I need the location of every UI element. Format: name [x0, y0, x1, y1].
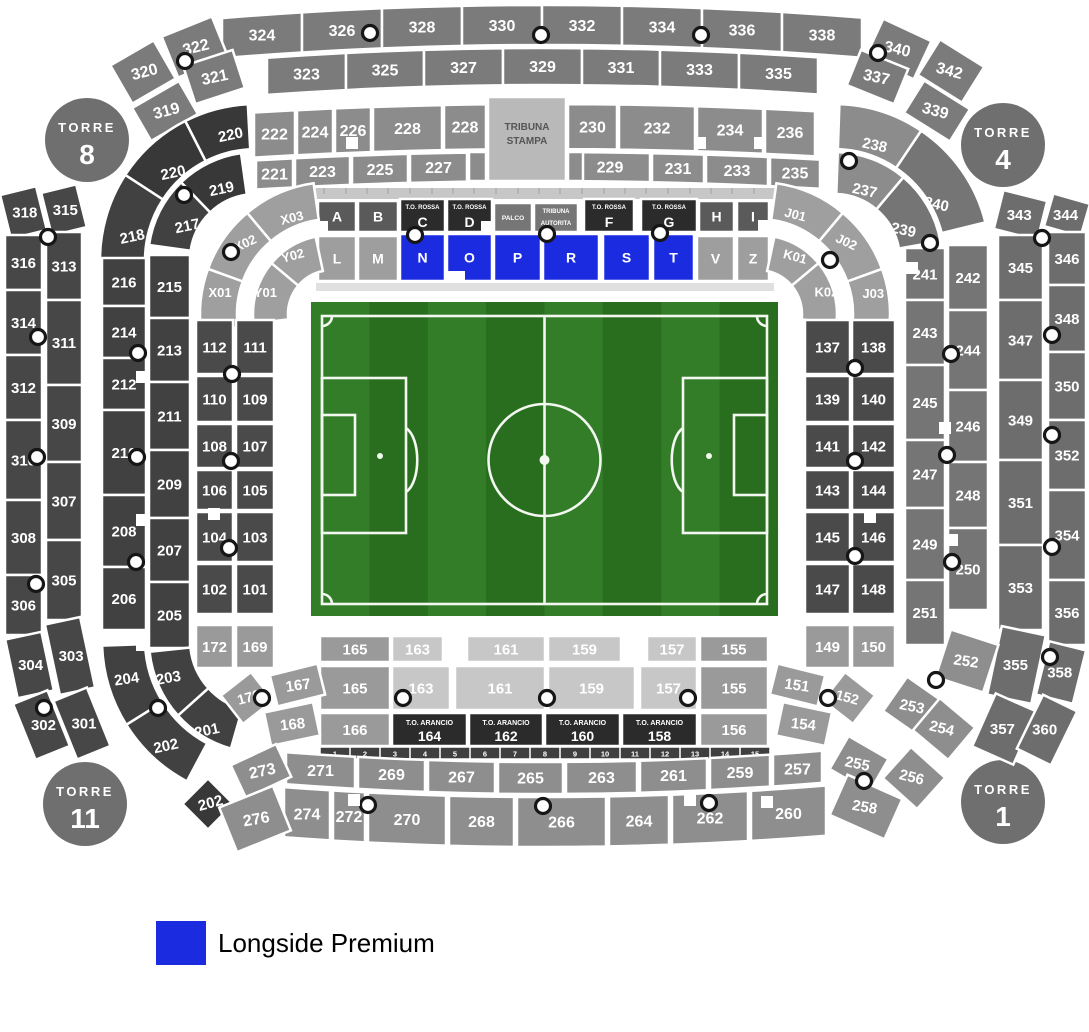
svg-text:TORRE: TORRE [56, 784, 114, 799]
svg-text:324: 324 [249, 28, 276, 45]
svg-text:157: 157 [659, 641, 684, 658]
svg-text:155: 155 [721, 680, 746, 697]
svg-text:T.O. ARANCIO: T.O. ARANCIO [636, 720, 684, 727]
svg-text:331: 331 [608, 60, 635, 77]
svg-text:110: 110 [202, 391, 226, 408]
svg-text:216: 216 [111, 274, 136, 291]
svg-text:272: 272 [336, 809, 363, 826]
svg-text:328: 328 [409, 20, 436, 37]
svg-text:160: 160 [571, 728, 595, 744]
svg-text:347: 347 [1008, 332, 1033, 349]
svg-text:3: 3 [393, 750, 397, 759]
svg-text:5: 5 [453, 750, 457, 759]
svg-text:358: 358 [1047, 665, 1072, 682]
svg-text:H: H [711, 208, 721, 224]
svg-text:306: 306 [11, 597, 36, 614]
svg-text:163: 163 [405, 641, 430, 658]
svg-text:350: 350 [1054, 378, 1079, 395]
svg-text:204: 204 [113, 669, 141, 689]
svg-text:336: 336 [729, 22, 756, 39]
svg-text:7: 7 [513, 750, 517, 759]
svg-text:245: 245 [912, 395, 937, 412]
svg-text:208: 208 [111, 523, 136, 540]
svg-text:159: 159 [572, 641, 597, 658]
svg-text:T.O. ARANCIO: T.O. ARANCIO [559, 720, 607, 727]
svg-text:265: 265 [517, 771, 544, 788]
svg-text:105: 105 [242, 482, 267, 499]
svg-text:154: 154 [790, 715, 817, 735]
svg-text:352: 352 [1054, 447, 1079, 464]
svg-text:163: 163 [408, 680, 433, 697]
svg-text:269: 269 [378, 767, 405, 784]
svg-text:147: 147 [815, 581, 840, 598]
svg-text:D: D [464, 214, 474, 230]
svg-text:TRIBUNA: TRIBUNA [505, 122, 550, 133]
svg-text:165: 165 [342, 641, 367, 658]
svg-text:248: 248 [955, 487, 980, 504]
svg-text:Z: Z [749, 250, 758, 266]
svg-text:318: 318 [12, 205, 37, 222]
svg-text:351: 351 [1008, 495, 1033, 512]
svg-text:229: 229 [597, 160, 624, 177]
svg-text:228: 228 [394, 121, 421, 138]
svg-text:101: 101 [242, 581, 267, 598]
svg-text:335: 335 [765, 66, 792, 83]
svg-text:I: I [751, 208, 755, 224]
svg-text:111: 111 [243, 339, 266, 356]
svg-text:148: 148 [861, 581, 886, 598]
svg-text:230: 230 [579, 119, 606, 136]
svg-text:167: 167 [285, 675, 312, 695]
svg-text:172: 172 [202, 639, 227, 656]
svg-text:F: F [605, 214, 614, 230]
svg-text:261: 261 [660, 768, 687, 785]
svg-text:106: 106 [202, 482, 227, 499]
svg-text:329: 329 [529, 59, 556, 76]
svg-text:227: 227 [425, 160, 452, 177]
svg-text:O: O [464, 249, 475, 265]
svg-text:304: 304 [18, 657, 44, 674]
svg-text:327: 327 [450, 60, 477, 77]
svg-text:Y01: Y01 [254, 285, 277, 300]
svg-text:Longside Premium: Longside Premium [218, 928, 435, 958]
svg-text:301: 301 [71, 715, 96, 732]
svg-text:224: 224 [302, 124, 329, 141]
svg-text:4: 4 [995, 144, 1011, 175]
svg-text:349: 349 [1008, 412, 1033, 429]
svg-text:305: 305 [51, 572, 76, 589]
svg-text:TORRE: TORRE [974, 782, 1032, 797]
svg-text:266: 266 [548, 815, 575, 832]
svg-text:143: 143 [815, 482, 840, 499]
svg-text:168: 168 [279, 715, 306, 735]
svg-text:274: 274 [294, 806, 321, 823]
svg-text:169: 169 [242, 639, 267, 656]
svg-text:T.O. ARANCIO: T.O. ARANCIO [406, 720, 454, 727]
svg-text:205: 205 [157, 607, 182, 624]
svg-text:T: T [669, 249, 678, 265]
svg-text:247: 247 [912, 466, 937, 483]
svg-text:N: N [417, 249, 427, 265]
svg-text:TRIBUNA: TRIBUNA [543, 209, 571, 215]
svg-text:309: 309 [51, 416, 76, 433]
svg-text:325: 325 [372, 62, 399, 79]
svg-text:233: 233 [724, 163, 751, 180]
svg-text:145: 145 [815, 529, 840, 546]
svg-text:307: 307 [51, 493, 76, 510]
svg-text:X01: X01 [209, 285, 232, 300]
svg-text:242: 242 [955, 270, 980, 287]
svg-text:112: 112 [202, 339, 226, 356]
svg-text:355: 355 [1003, 657, 1028, 674]
svg-text:346: 346 [1054, 251, 1079, 268]
svg-text:158: 158 [648, 728, 672, 744]
svg-text:209: 209 [157, 476, 182, 493]
svg-text:257: 257 [784, 761, 811, 778]
svg-text:8: 8 [79, 139, 95, 170]
svg-text:12: 12 [661, 750, 669, 759]
svg-text:264: 264 [626, 813, 653, 830]
svg-text:103: 103 [242, 529, 267, 546]
svg-text:334: 334 [649, 19, 676, 36]
svg-text:140: 140 [861, 391, 886, 408]
svg-text:225: 225 [367, 162, 394, 179]
svg-text:313: 313 [51, 258, 76, 275]
svg-text:P: P [513, 249, 522, 265]
svg-text:338: 338 [809, 27, 836, 44]
svg-text:235: 235 [782, 165, 809, 182]
svg-text:139: 139 [815, 391, 840, 408]
svg-text:357: 357 [990, 721, 1015, 738]
svg-text:TORRE: TORRE [58, 120, 116, 135]
svg-text:151: 151 [783, 675, 810, 695]
svg-text:T.O. ROSSA: T.O. ROSSA [452, 205, 487, 211]
svg-text:259: 259 [727, 765, 754, 782]
svg-text:162: 162 [494, 728, 518, 744]
svg-text:234: 234 [717, 123, 744, 140]
svg-text:308: 308 [11, 530, 36, 547]
svg-text:150: 150 [861, 639, 886, 656]
svg-text:270: 270 [394, 812, 421, 829]
svg-text:260: 260 [775, 806, 802, 823]
svg-text:V: V [711, 250, 721, 266]
svg-text:215: 215 [157, 279, 182, 296]
svg-text:222: 222 [261, 126, 288, 143]
svg-text:315: 315 [53, 202, 78, 219]
svg-text:206: 206 [111, 591, 136, 608]
svg-text:252: 252 [952, 651, 979, 671]
svg-text:332: 332 [569, 18, 596, 35]
svg-text:267: 267 [448, 770, 475, 787]
svg-text:155: 155 [721, 641, 746, 658]
svg-text:STAMPA: STAMPA [507, 136, 548, 147]
svg-text:161: 161 [493, 641, 518, 658]
svg-text:156: 156 [721, 722, 746, 739]
svg-text:343: 343 [1007, 207, 1032, 224]
svg-text:B: B [373, 208, 383, 224]
svg-text:164: 164 [418, 728, 442, 744]
svg-text:348: 348 [1054, 311, 1079, 328]
svg-text:221: 221 [261, 167, 288, 184]
svg-text:K02: K02 [815, 284, 839, 299]
svg-text:10: 10 [601, 750, 609, 759]
svg-text:228: 228 [452, 120, 479, 137]
svg-text:213: 213 [157, 342, 182, 359]
svg-text:R: R [566, 249, 576, 265]
svg-text:M: M [372, 250, 384, 266]
svg-text:232: 232 [644, 120, 671, 137]
svg-text:11: 11 [70, 803, 100, 834]
svg-text:360: 360 [1032, 722, 1057, 739]
svg-text:L: L [333, 250, 342, 266]
svg-text:249: 249 [912, 536, 937, 553]
svg-text:T.O. ARANCIO: T.O. ARANCIO [482, 720, 530, 727]
svg-text:312: 312 [11, 380, 36, 397]
svg-text:J03: J03 [862, 286, 884, 301]
svg-text:303: 303 [59, 648, 84, 665]
svg-text:333: 333 [686, 62, 713, 79]
svg-text:212: 212 [111, 376, 136, 393]
svg-text:165: 165 [342, 680, 367, 697]
svg-text:236: 236 [777, 125, 804, 142]
svg-text:102: 102 [202, 581, 227, 598]
svg-text:263: 263 [588, 770, 615, 787]
svg-text:262: 262 [697, 811, 724, 828]
svg-text:231: 231 [665, 161, 692, 178]
svg-text:1: 1 [995, 801, 1011, 832]
svg-text:6: 6 [483, 750, 487, 759]
svg-text:13: 13 [691, 750, 699, 759]
svg-text:314: 314 [11, 315, 37, 332]
svg-text:207: 207 [157, 542, 182, 559]
svg-text:302: 302 [31, 717, 56, 734]
svg-text:356: 356 [1054, 605, 1079, 622]
svg-text:223: 223 [309, 164, 336, 181]
svg-text:138: 138 [861, 339, 886, 356]
svg-text:146: 146 [861, 529, 886, 546]
svg-text:345: 345 [1008, 260, 1033, 277]
svg-text:326: 326 [329, 23, 356, 40]
svg-text:311: 311 [52, 335, 76, 352]
svg-text:144: 144 [861, 482, 887, 499]
svg-text:214: 214 [111, 324, 137, 341]
svg-text:323: 323 [293, 66, 320, 83]
svg-text:137: 137 [815, 339, 840, 356]
svg-text:246: 246 [955, 418, 980, 435]
svg-text:A: A [332, 208, 342, 224]
svg-text:9: 9 [573, 750, 577, 759]
svg-text:T.O. ROSSA: T.O. ROSSA [405, 205, 440, 211]
svg-text:TORRE: TORRE [974, 125, 1032, 140]
svg-text:157: 157 [656, 680, 681, 697]
svg-text:142: 142 [861, 438, 886, 455]
svg-text:141: 141 [815, 438, 840, 455]
svg-text:159: 159 [579, 680, 604, 697]
svg-text:T.O. ROSSA: T.O. ROSSA [592, 205, 627, 211]
svg-text:109: 109 [242, 391, 267, 408]
svg-text:11: 11 [631, 750, 639, 759]
svg-text:344: 344 [1053, 207, 1079, 224]
svg-text:T.O. ROSSA: T.O. ROSSA [652, 205, 687, 211]
svg-text:211: 211 [157, 408, 181, 425]
svg-text:243: 243 [912, 325, 937, 342]
svg-text:353: 353 [1008, 580, 1033, 597]
svg-text:S: S [622, 249, 631, 265]
svg-text:330: 330 [489, 18, 516, 35]
svg-text:108: 108 [202, 438, 227, 455]
svg-text:166: 166 [342, 722, 367, 739]
svg-text:161: 161 [487, 680, 512, 697]
svg-text:268: 268 [468, 814, 495, 831]
svg-text:8: 8 [543, 750, 547, 759]
svg-text:251: 251 [912, 605, 937, 622]
svg-text:149: 149 [815, 639, 840, 656]
svg-text:107: 107 [242, 438, 267, 455]
svg-text:316: 316 [11, 255, 36, 272]
svg-text:271: 271 [307, 763, 334, 780]
svg-text:PALCO: PALCO [502, 215, 524, 222]
